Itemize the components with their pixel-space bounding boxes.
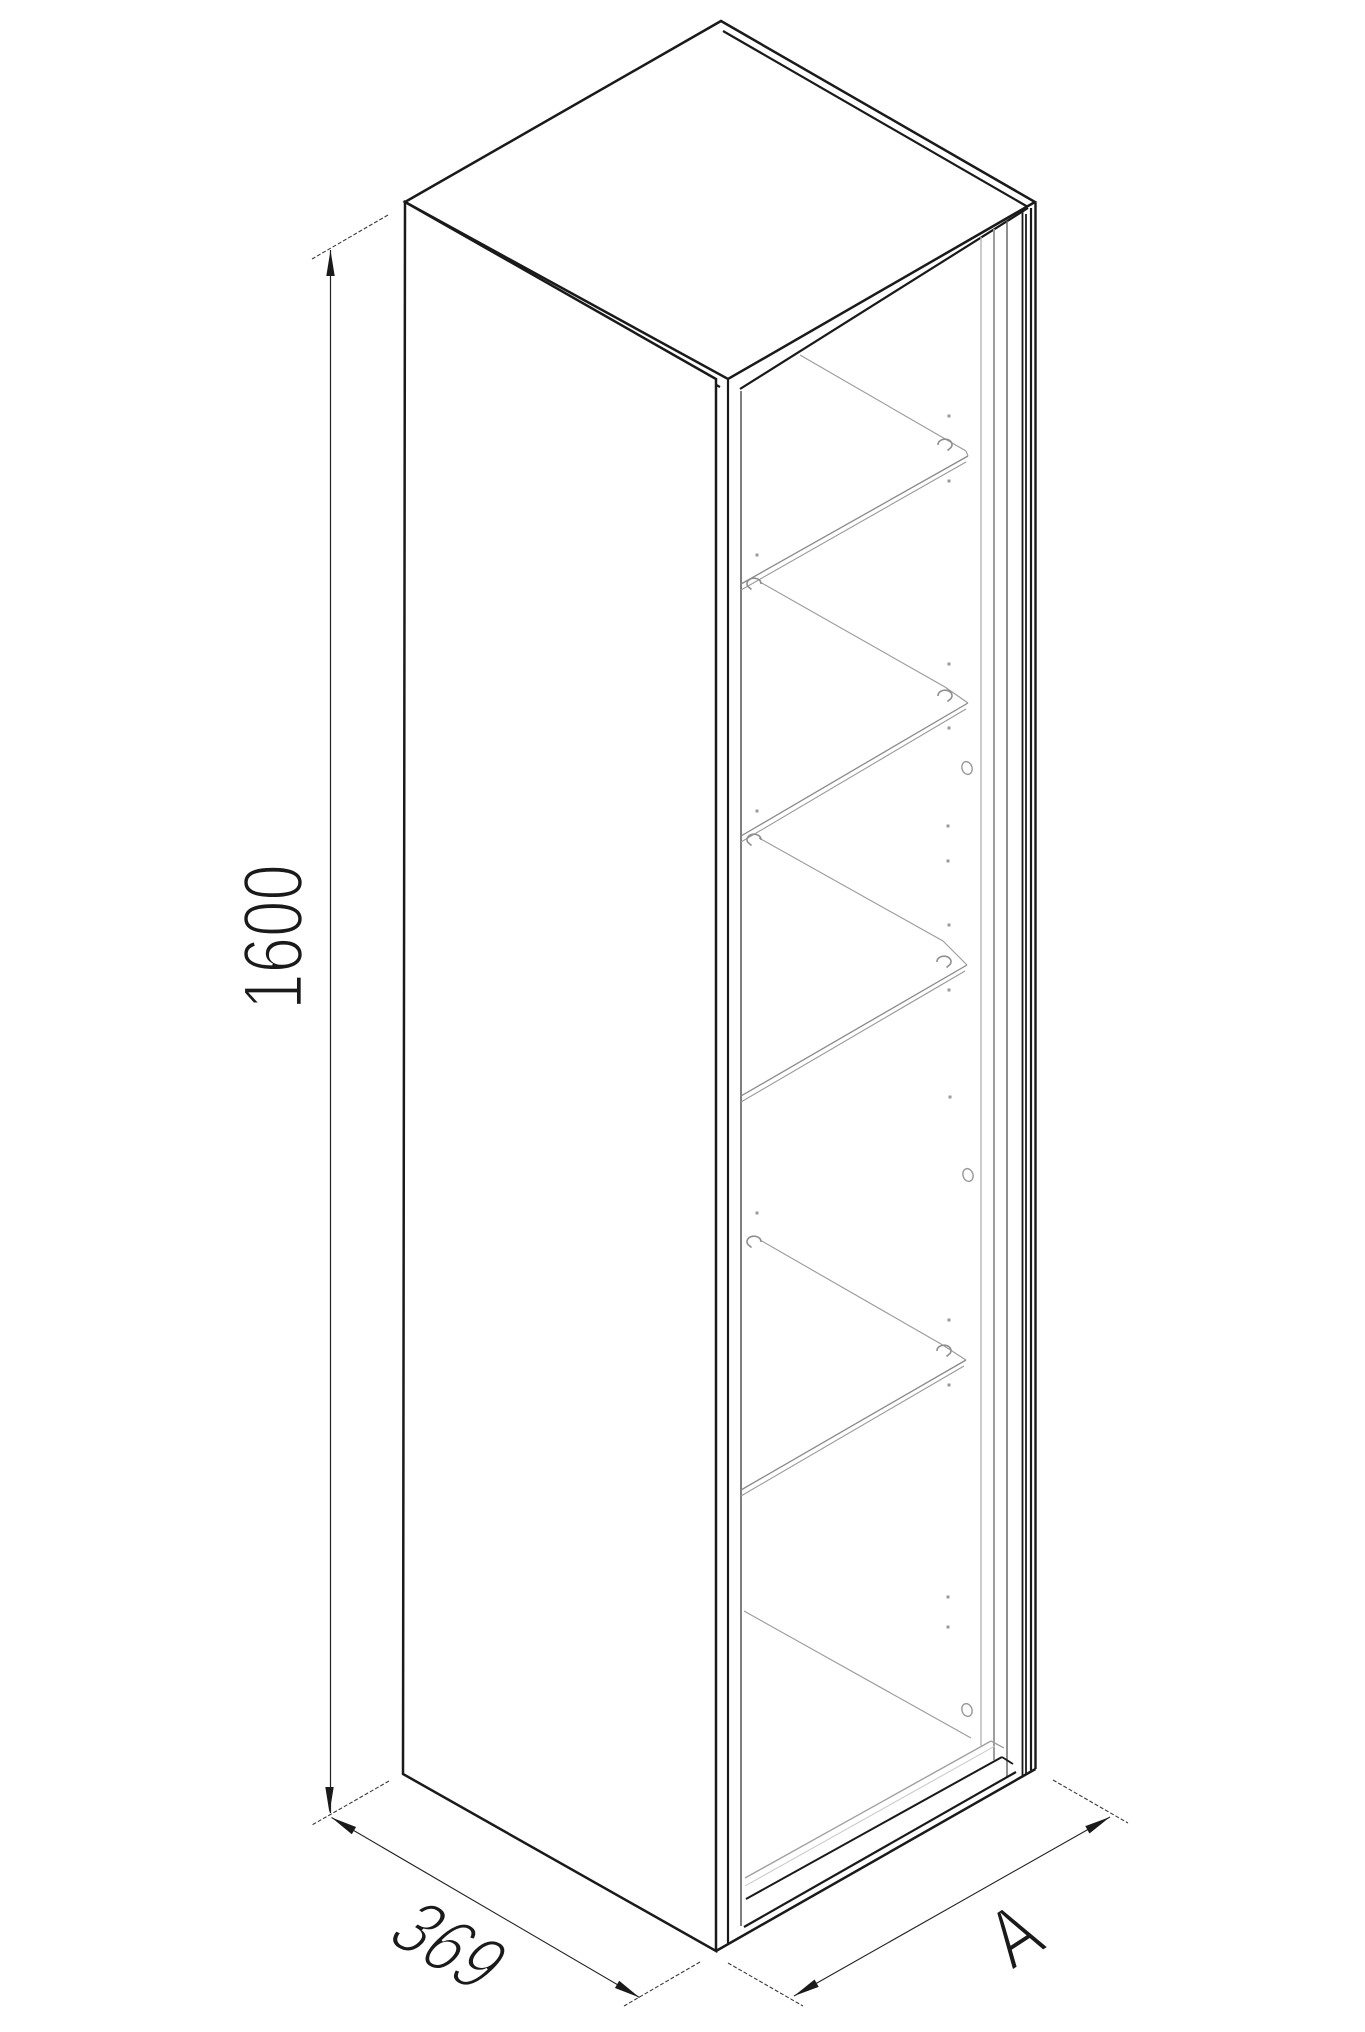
svg-text:1600: 1600 [226,864,320,1010]
